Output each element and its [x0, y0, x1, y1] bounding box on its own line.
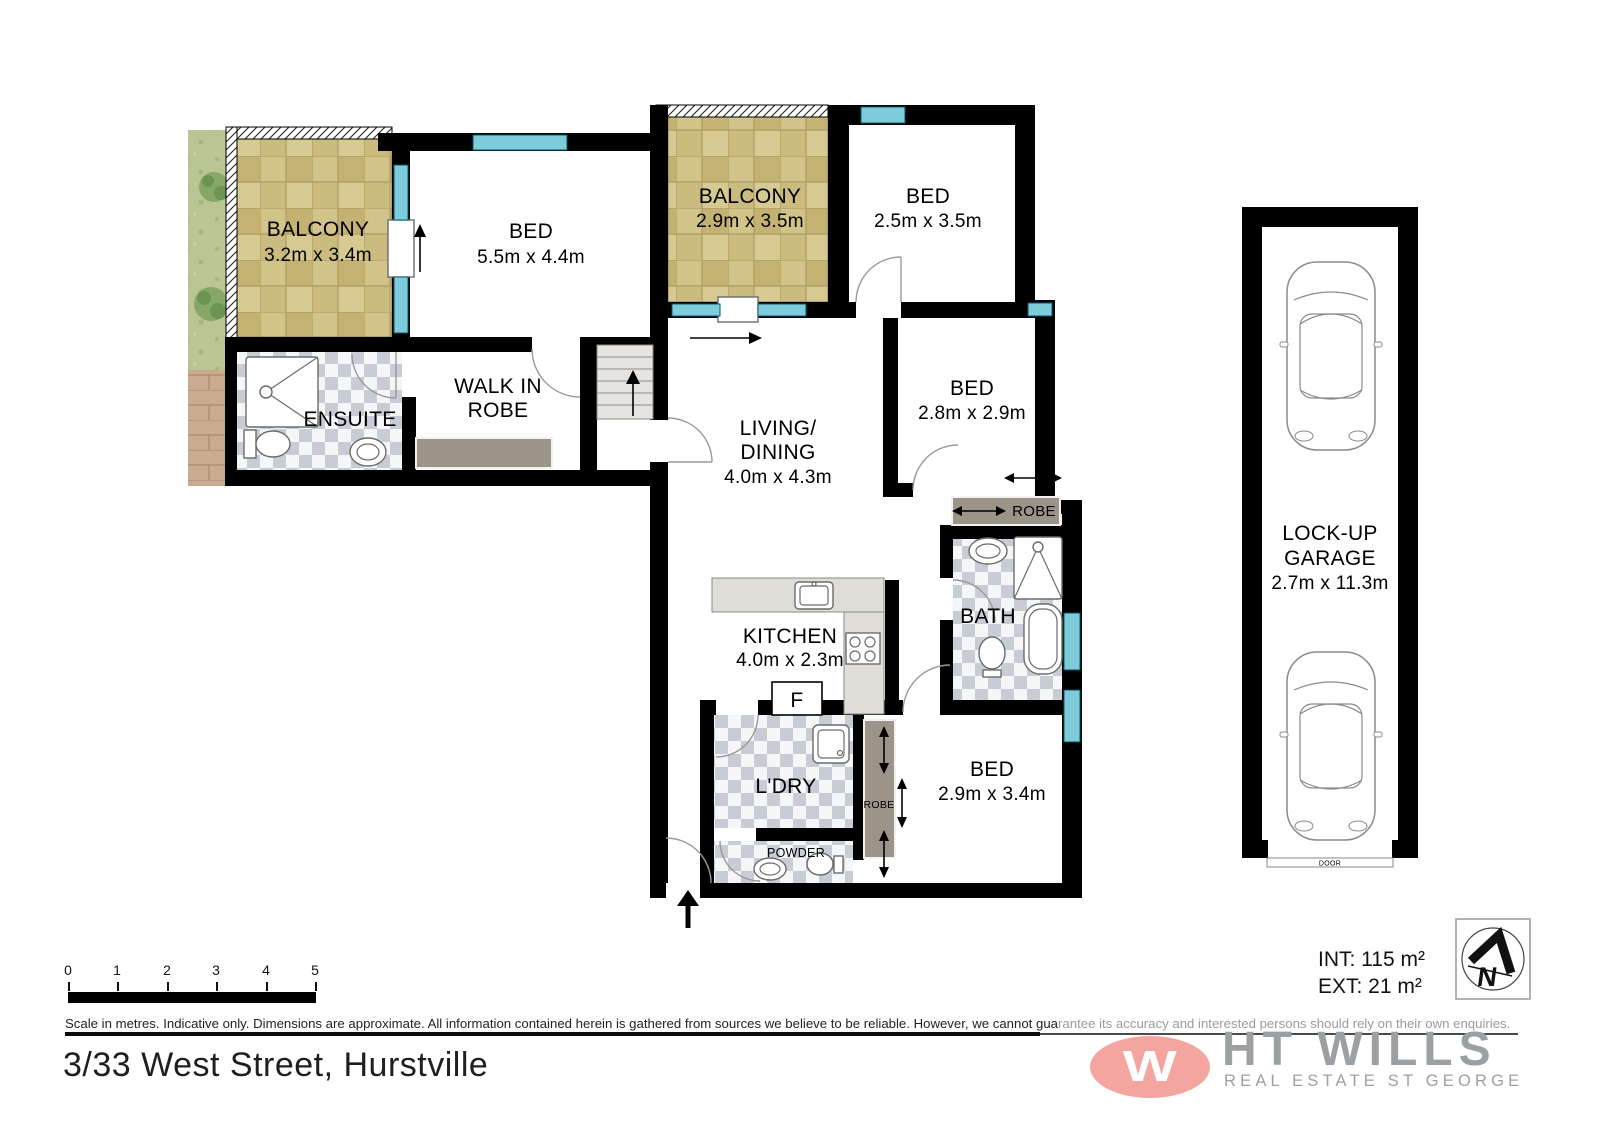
- logo-monogram-icon: W: [1090, 1036, 1210, 1098]
- scale-tick-label: 3: [212, 962, 220, 978]
- tree-icon: [199, 172, 229, 202]
- car-icon: [1280, 652, 1382, 840]
- bed3-label: BED: [950, 377, 994, 400]
- agency-logo: W HT WILLS REAL ESTATE ST GEORGE: [1090, 1022, 1530, 1122]
- living-dims: 4.0m x 4.3m: [724, 467, 832, 488]
- fridge-label: F: [790, 689, 803, 712]
- bed1-label: BED: [509, 220, 553, 243]
- laundry-label: L'DRY: [755, 775, 816, 798]
- area-summary: INT: 115 m² EXT: 21 m²: [1318, 946, 1425, 1000]
- ensuite-label: ENSUITE: [303, 408, 396, 431]
- bed3-dims: 2.8m x 2.9m: [918, 403, 1026, 424]
- internal-area: INT: 115 m²: [1318, 946, 1425, 973]
- balcony1-label: BALCONY: [267, 218, 369, 241]
- stairs: [597, 345, 653, 419]
- robe-strip-bed4: [864, 720, 895, 858]
- scale-tick-label: 1: [113, 962, 121, 978]
- garage-dims: 2.7m x 11.3m: [1271, 573, 1388, 594]
- balcony2-dims: 2.9m x 3.5m: [696, 211, 804, 232]
- divider-rule: [65, 1032, 1040, 1036]
- garage-label-1: LOCK-UP: [1282, 522, 1377, 545]
- bath-label: BATH: [960, 605, 1016, 628]
- bed2-label: BED: [906, 185, 950, 208]
- garage-door-label: DOOR: [1319, 861, 1341, 868]
- walkinrobe-label-2: ROBE: [468, 399, 529, 422]
- bed2-dims: 2.5m x 3.5m: [874, 211, 982, 232]
- address: 3/33 West Street, Hurstville: [63, 1046, 488, 1085]
- walkinrobe-label-1: WALK IN: [454, 375, 542, 398]
- external-area: EXT: 21 m²: [1318, 973, 1425, 1000]
- living-label-1: LIVING/: [740, 417, 817, 440]
- scale-tick-label: 0: [64, 962, 72, 978]
- disclaimer-dark: Scale in metres. Indicative only. Dimens…: [65, 1016, 1058, 1031]
- scale-bar: 0 1 2 3 4 5: [60, 962, 330, 1010]
- compass: N: [1455, 918, 1531, 1000]
- tree-icon: [194, 287, 228, 321]
- bed4-dims: 2.9m x 3.4m: [938, 784, 1046, 805]
- cooktop-icon: [846, 633, 880, 664]
- powder-label: POWDER: [767, 846, 825, 860]
- living-label-2: DINING: [740, 441, 815, 464]
- bed4-label: BED: [970, 758, 1014, 781]
- garden: [188, 130, 230, 486]
- garage-label-2: GARAGE: [1284, 547, 1376, 570]
- robe3-label: ROBE: [1012, 503, 1056, 520]
- logo-monogram-letter: W: [1123, 1042, 1177, 1092]
- car-icon: [1280, 262, 1382, 450]
- robe4-label: ROBE: [864, 799, 895, 811]
- floorplan-page: DOOR BALCONY 3.2m x 3.4m BED 5.5m x 4.4m…: [0, 0, 1600, 1132]
- scale-bar-rule: [68, 992, 316, 1003]
- scale-tick-label: 2: [163, 962, 171, 978]
- laundry-fixtures: [813, 725, 849, 763]
- kitchen-label: KITCHEN: [743, 625, 837, 648]
- walkin-robe-wardrobe: [416, 438, 552, 468]
- entry-arrow-icon: [677, 890, 699, 928]
- bed1-dims: 5.5m x 4.4m: [477, 247, 585, 268]
- balcony1-dims: 3.2m x 3.4m: [264, 245, 372, 266]
- kitchen-dims: 4.0m x 2.3m: [736, 650, 844, 671]
- logo-tagline: REAL ESTATE ST GEORGE: [1224, 1072, 1523, 1091]
- logo-brand: HT WILLS: [1222, 1022, 1497, 1077]
- scale-tick-label: 4: [262, 962, 270, 978]
- balcony2-label: BALCONY: [699, 185, 801, 208]
- scale-tick-label: 5: [311, 962, 319, 978]
